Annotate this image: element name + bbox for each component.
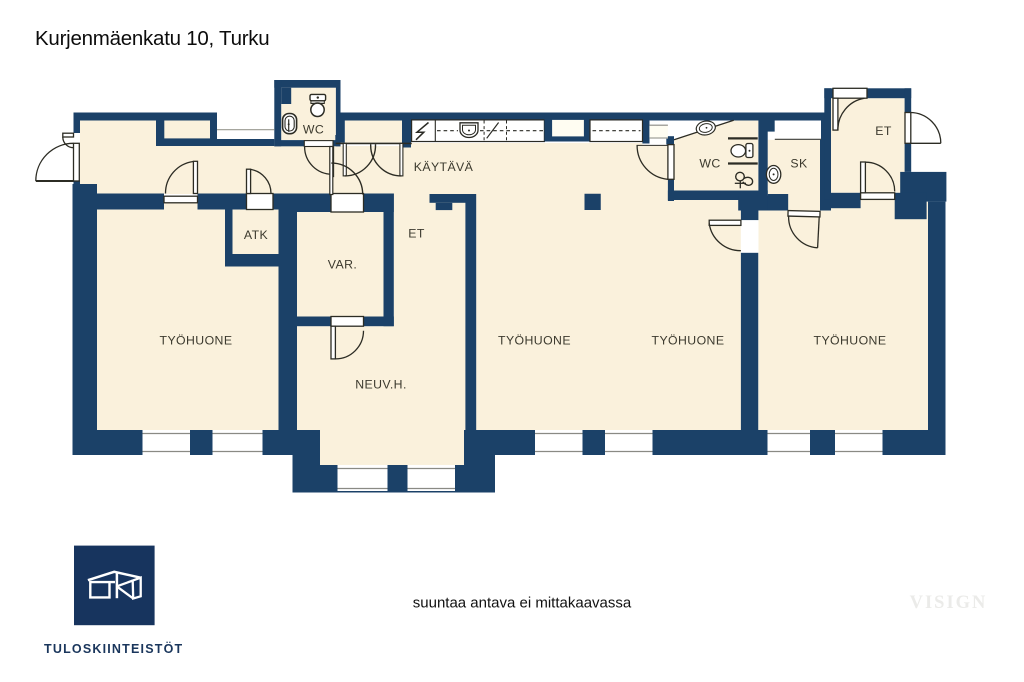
svg-text:TYÖHUONE: TYÖHUONE [498, 334, 571, 348]
svg-text:ATK: ATK [244, 228, 269, 242]
svg-text:Kurjenmäenkatu 10, Turku: Kurjenmäenkatu 10, Turku [35, 27, 269, 50]
svg-text:TYÖHUONE: TYÖHUONE [160, 334, 233, 348]
svg-text:WC: WC [699, 157, 720, 171]
svg-text:suuntaa antava ei mittakaavass: suuntaa antava ei mittakaavassa [413, 595, 632, 612]
svg-text:TYÖHUONE: TYÖHUONE [652, 334, 725, 348]
svg-text:ET: ET [875, 124, 892, 138]
svg-text:KÄYTÄVÄ: KÄYTÄVÄ [414, 160, 474, 174]
svg-text:VAR.: VAR. [328, 258, 357, 272]
svg-text:ET: ET [408, 227, 425, 241]
svg-text:TYÖHUONE: TYÖHUONE [814, 334, 887, 348]
svg-text:NEUV.H.: NEUV.H. [355, 378, 407, 392]
svg-text:VISIGN: VISIGN [910, 593, 988, 613]
svg-text:TULOSKIINTEISTÖT: TULOSKIINTEISTÖT [44, 641, 183, 656]
svg-text:SK: SK [790, 157, 808, 171]
svg-text:WC: WC [303, 123, 324, 137]
